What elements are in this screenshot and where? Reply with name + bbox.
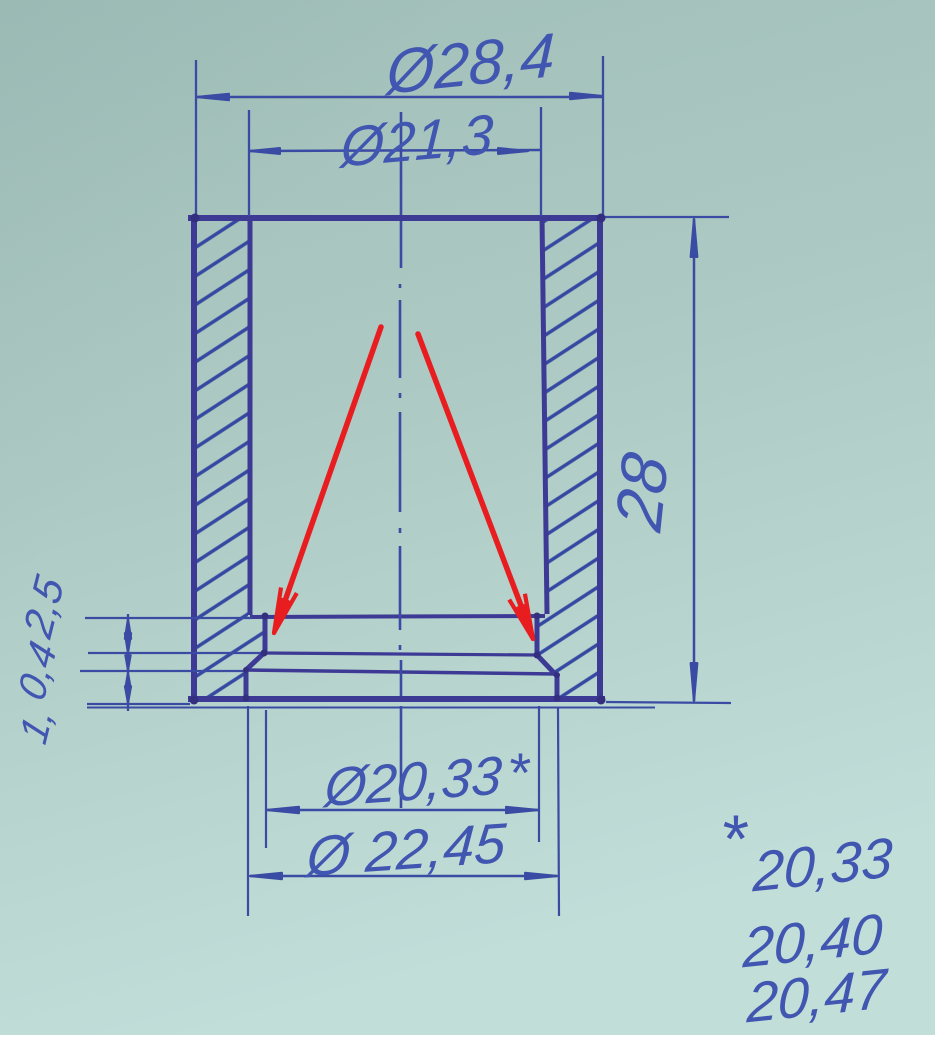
svg-text:Ø20,33: Ø20,33: [321, 746, 504, 819]
svg-text:*: *: [507, 741, 531, 804]
svg-text:*: *: [720, 801, 749, 877]
